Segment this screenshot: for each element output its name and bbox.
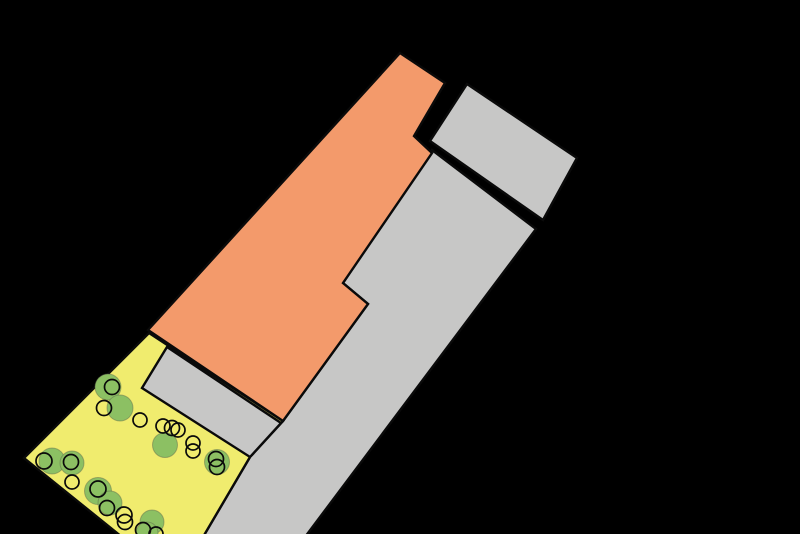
site-plan-canvas (0, 0, 800, 534)
parcel-shapes-layer (24, 53, 577, 534)
site-plan-svg (0, 0, 800, 534)
